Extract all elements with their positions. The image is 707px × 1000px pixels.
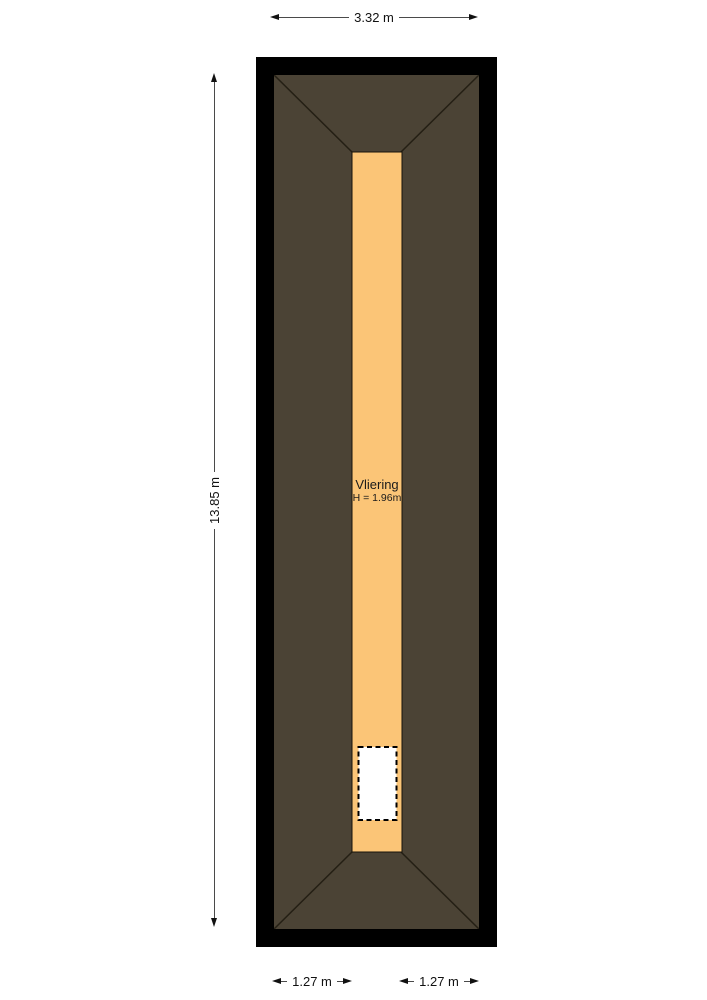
dimension-bottom-left: 1.27 m — [272, 975, 352, 987]
arrow-right-icon — [470, 978, 479, 984]
floorplan-canvas: 3.32 m 13.85 m — [0, 0, 707, 1000]
dimension-bottom-right: 1.27 m — [399, 975, 479, 987]
dimension-left-height: 13.85 m — [206, 73, 222, 927]
arrow-down-icon — [211, 918, 217, 927]
attic-wall-outline — [256, 57, 497, 947]
arrow-up-icon — [211, 73, 217, 82]
arrow-right-icon — [343, 978, 352, 984]
dimension-line — [214, 82, 215, 472]
dimension-left-label: 13.85 m — [207, 472, 222, 529]
dimension-bottom-right-label: 1.27 m — [414, 974, 464, 989]
dimension-line — [279, 17, 349, 18]
arrow-right-icon — [469, 14, 478, 20]
dimension-bottom-left-label: 1.27 m — [287, 974, 337, 989]
arrow-left-icon — [272, 978, 281, 984]
dimension-top-label: 3.32 m — [349, 10, 399, 25]
attic-interior — [274, 75, 479, 929]
dimension-top-width: 3.32 m — [270, 11, 478, 23]
arrow-left-icon — [270, 14, 279, 20]
roof-plan-svg — [274, 75, 479, 929]
arrow-left-icon — [399, 978, 408, 984]
dimension-line — [214, 529, 215, 919]
dimension-line — [399, 17, 469, 18]
hatch-opening — [359, 747, 397, 820]
